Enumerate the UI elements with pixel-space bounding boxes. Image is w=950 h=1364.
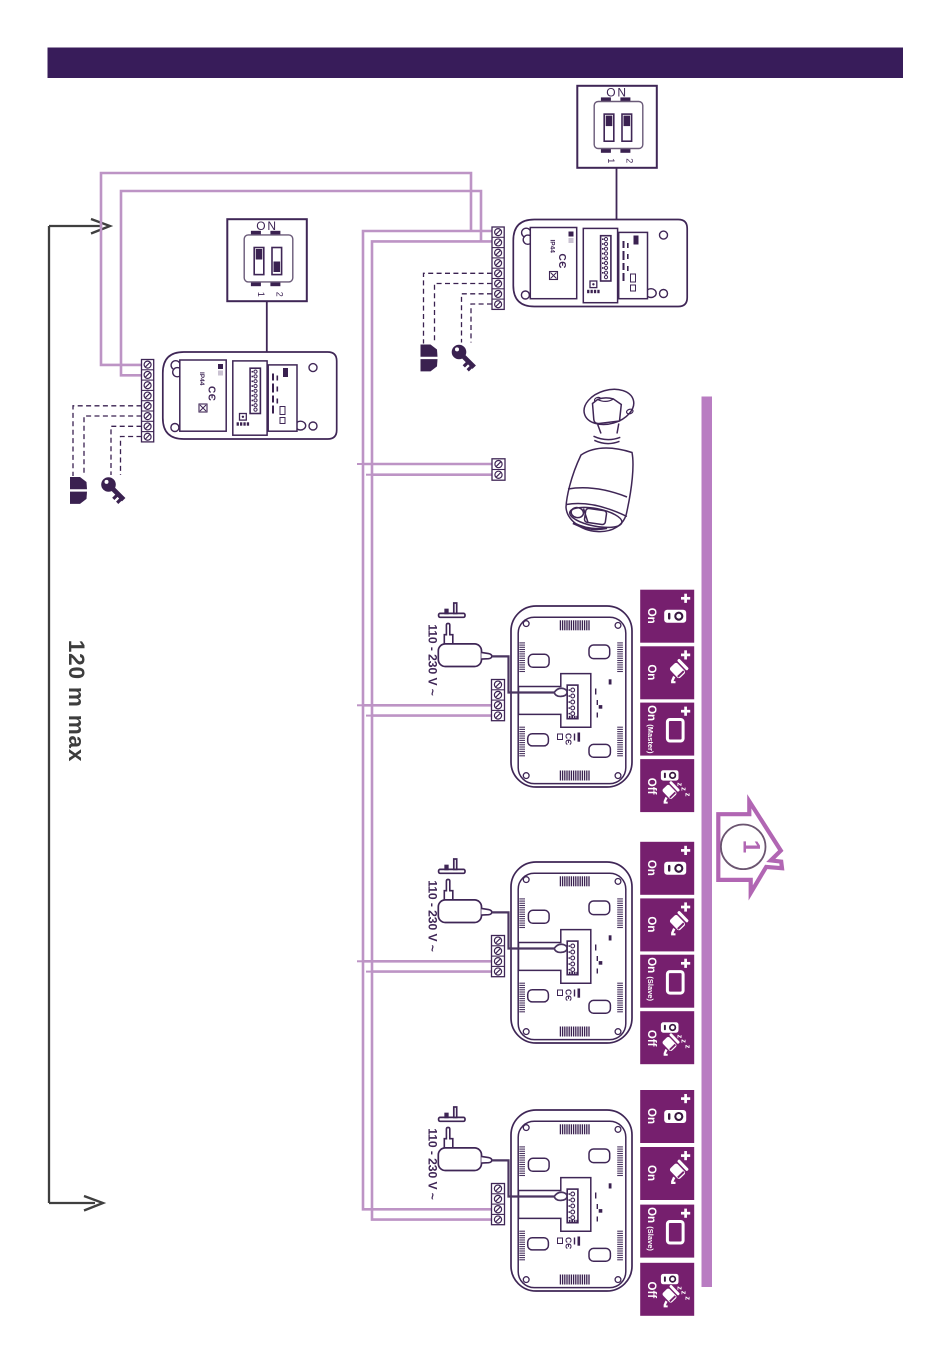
svg-text:1: 1 (738, 840, 765, 853)
svg-text:120 m max: 120 m max (64, 640, 89, 762)
